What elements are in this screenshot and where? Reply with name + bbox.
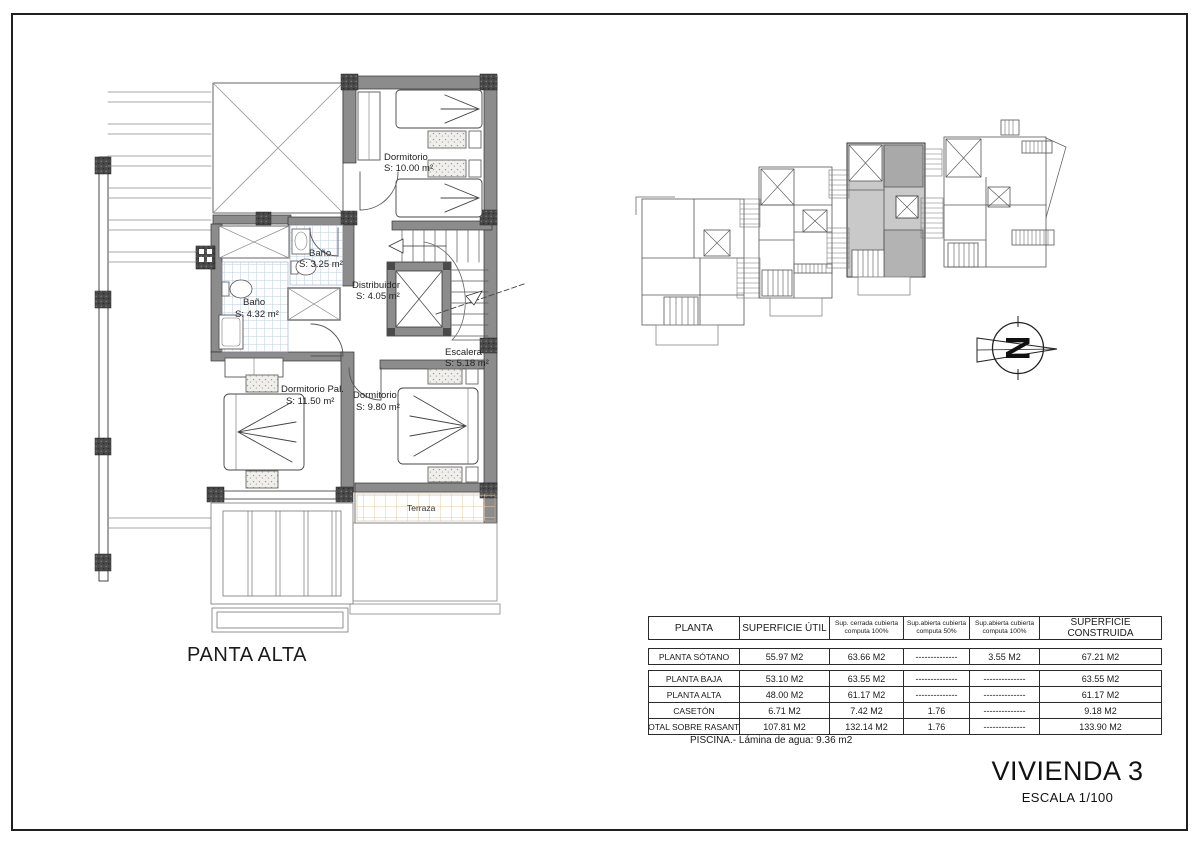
label-dormitorio-top-area: S: 10.00 m² [384, 163, 433, 174]
label-bano-large-area: S: 4.32 m² [235, 309, 279, 320]
open-terrace-outline [350, 523, 500, 614]
table-cell: 63.66 M2 [829, 649, 903, 664]
table-cell: -------------- [903, 687, 969, 702]
label-terraza: Terraza [407, 503, 436, 513]
table-cell: 132.14 M2 [829, 719, 903, 734]
site-unit-2 [759, 167, 832, 316]
table-row-total: TOTAL SOBRE RASANTE 107.81 M2 132.14 M2 … [648, 718, 1162, 735]
table-cell: 63.55 M2 [829, 671, 903, 686]
site-unit-4 [944, 120, 1054, 267]
header-planta: PLANTA [649, 617, 739, 639]
table-row-baja: PLANTA BAJA 53.10 M2 63.55 M2 ----------… [648, 670, 1162, 687]
bedroom-right-furniture [398, 369, 478, 482]
table-cell: 107.81 M2 [739, 719, 829, 734]
table-cell: 53.10 M2 [739, 671, 829, 686]
table-cell: 55.97 M2 [739, 649, 829, 664]
table-cell: -------------- [969, 719, 1039, 734]
site-unit-3-highlighted [847, 143, 925, 295]
table-cell: -------------- [903, 671, 969, 686]
label-escalera-area: S: 5.18 m² [445, 358, 489, 369]
table-cell: 1.76 [903, 703, 969, 718]
table-cell: 9.18 M2 [1039, 703, 1161, 718]
table-cell: 67.21 M2 [1039, 649, 1161, 664]
plan-title: PANTA ALTA [187, 644, 307, 667]
table-row-caseton: CASETÓN 6.71 M2 7.42 M2 1.76 -----------… [648, 702, 1162, 719]
table-cell: 1.76 [903, 719, 969, 734]
label-dormitorio-pal: Dormitorio Pal. [281, 384, 344, 395]
label-escalera: Escalera [445, 347, 483, 358]
north-arrow: N [977, 316, 1057, 380]
label-dormitorio-pal-area: S: 11.50 m² [286, 396, 334, 407]
table-cell: 61.17 M2 [1039, 687, 1161, 702]
table-cell: -------------- [903, 649, 969, 664]
exterior-steps [108, 92, 211, 528]
title-block: VIVIENDA 3 ESCALA 1/100 [955, 756, 1180, 805]
table-row-sotano: PLANTA SÓTANO 55.97 M2 63.66 M2 --------… [648, 648, 1162, 665]
table-cell: 61.17 M2 [829, 687, 903, 702]
pergola [211, 503, 353, 632]
header-sup-abierta-100: Sup.abierta cubierta computa 100% [969, 617, 1039, 639]
vent-detail [196, 246, 215, 269]
label-dormitorio-right: Dormitorio [353, 390, 397, 401]
header-superficie-util: SUPERFICIE ÚTIL [739, 617, 829, 639]
header-superficie-construida: SUPERFICIE CONSTRUIDA [1039, 617, 1161, 639]
table-row-alta: PLANTA ALTA 48.00 M2 61.17 M2 ----------… [648, 686, 1162, 703]
table-cell: PLANTA ALTA [649, 687, 739, 702]
table-cell: -------------- [969, 671, 1039, 686]
pool-note: PISCINA.- Lámina de agua: 9.36 m2 [690, 735, 852, 746]
project-title: VIVIENDA 3 [955, 756, 1180, 787]
north-letter: N [998, 336, 1036, 361]
scale-label: ESCALA 1/100 [955, 790, 1180, 805]
table-cell: PLANTA BAJA [649, 671, 739, 686]
header-sup-abierta-50: Sup.abierta cubierta computa 50% [903, 617, 969, 639]
label-distribuidor: Distribuidor [352, 280, 400, 291]
table-cell: 3.55 M2 [969, 649, 1039, 664]
label-distribuidor-area: S: 4.05 m² [356, 291, 400, 302]
label-dormitorio-top: Dormitorio [384, 152, 428, 163]
table-cell: -------------- [969, 703, 1039, 718]
header-sup-cerrada-100: Sup. cerrada cubierta computa 100% [829, 617, 903, 639]
bedroom-pal-furniture [224, 358, 304, 488]
boundary-fence [95, 157, 111, 581]
table-cell: -------------- [969, 687, 1039, 702]
table-cell: 6.71 M2 [739, 703, 829, 718]
label-bano-large: Baño [243, 297, 265, 308]
site-unit-1 [642, 199, 744, 345]
table-cell: CASETÓN [649, 703, 739, 718]
table-cell: PLANTA SÓTANO [649, 649, 739, 664]
table-cell: 48.00 M2 [739, 687, 829, 702]
label-bano-small: Baño [309, 248, 331, 259]
main-floor-plan: Dormitorio S: 10.00 m² Baño S: 3.25 m² B… [95, 74, 524, 632]
site-plan [636, 120, 1066, 345]
table-cell: TOTAL SOBRE RASANTE [649, 719, 739, 734]
table-cell: 7.42 M2 [829, 703, 903, 718]
label-bano-small-area: S: 3.25 m² [299, 259, 343, 270]
label-dormitorio-right-area: S: 9.80 m² [356, 402, 400, 413]
areas-table: PLANTA SUPERFICIE ÚTIL Sup. cerrada cubi… [648, 616, 1162, 735]
areas-table-header: PLANTA SUPERFICIE ÚTIL Sup. cerrada cubi… [648, 616, 1162, 640]
table-cell: 63.55 M2 [1039, 671, 1161, 686]
table-cell: 133.90 M2 [1039, 719, 1161, 734]
drawing-sheet: Dormitorio S: 10.00 m² Baño S: 3.25 m² B… [0, 0, 1200, 843]
void-skylight [213, 83, 343, 213]
window-band [224, 491, 336, 499]
